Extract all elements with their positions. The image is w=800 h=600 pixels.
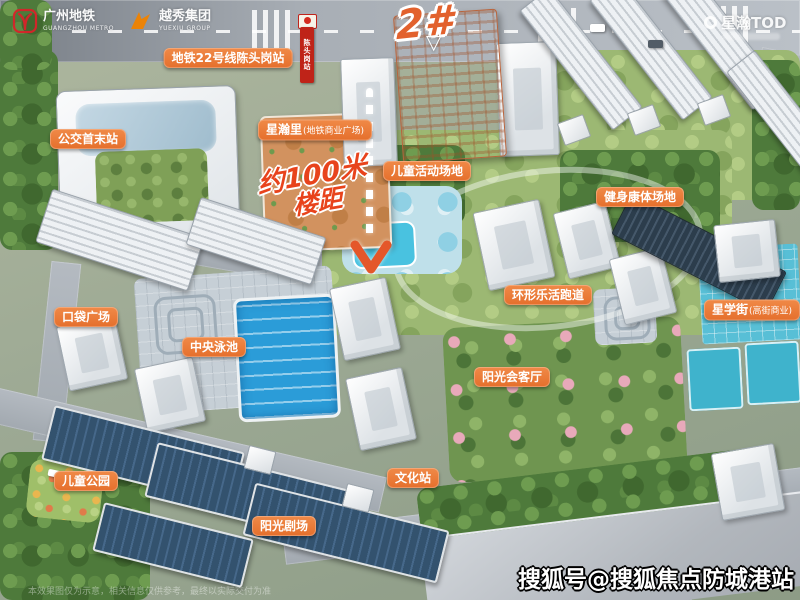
map-label-text: 文化站	[395, 471, 431, 485]
central-swimming-pool	[233, 293, 341, 422]
map-label-pocket-plaza: 口袋广场	[54, 307, 118, 327]
residential-tower	[713, 219, 781, 283]
map-label-sunshine-lounge: 阳光会客厅	[474, 367, 550, 387]
sohu-watermark: 搜狐号@搜狐焦点防城港站	[518, 560, 794, 594]
project-watermark: 星瀚TOD	[704, 12, 786, 33]
map-label-bus-terminal: 公交首末站	[50, 129, 126, 149]
guangzhou-metro-logo-icon	[12, 8, 38, 34]
developer-logos: 广州地铁 GUANGZHOU METRO 越秀集团 YUEXIU GROUP	[12, 8, 211, 34]
car	[648, 40, 663, 48]
aerial-site-plan: 陈头岗站 约100米 楼距 2# ▽ 地铁22号线陈头岗站公交首末站星瀚里(地铁…	[0, 0, 800, 600]
map-label-text: 儿童活动场地	[391, 164, 463, 178]
map-label-text: 健身康体场地	[604, 190, 676, 204]
map-label-sunshine-theater: 阳光剧场	[252, 516, 316, 536]
map-label-central-pool: 中央泳池	[182, 337, 246, 357]
map-label-subtext: (高街商业)	[749, 307, 792, 317]
map-label-text: 地铁22号线陈头岗站	[172, 51, 285, 65]
distance-arrow-icon	[348, 240, 394, 276]
map-label-children-activity-ground: 儿童活动场地	[383, 161, 471, 181]
map-label-text: 环形乐活跑道	[512, 288, 584, 302]
sports-court	[744, 341, 800, 406]
map-label-star-street: 星学街(高街商业)	[704, 300, 800, 321]
map-label-xinghanli-mall: 星瀚里(地铁商业广场)	[258, 120, 372, 141]
map-label-text: 中央泳池	[190, 340, 238, 354]
metro-sign-text: 陈头岗站	[300, 27, 314, 83]
map-label-loop-track: 环形乐活跑道	[504, 285, 592, 305]
yuexiu-sub: YUEXIU GROUP	[159, 25, 211, 32]
residential-tower	[711, 443, 786, 521]
map-label-text: 口袋广场	[62, 310, 110, 324]
map-label-metro-line22-station: 地铁22号线陈头岗站	[164, 48, 293, 68]
guangzhou-metro-sub: GUANGZHOU METRO	[43, 25, 114, 32]
map-label-text: 阳光剧场	[260, 519, 308, 533]
building-2-number: 2#	[396, 0, 453, 49]
map-label-text: 儿童公园	[62, 474, 110, 488]
yuexiu-name: 越秀集团	[159, 10, 211, 24]
metro-entrance-sign: 陈头岗站	[298, 14, 316, 84]
map-label-text: 阳光会客厅	[482, 370, 542, 384]
yuexiu-logo: 越秀集团 YUEXIU GROUP	[128, 8, 211, 34]
yuexiu-logo-icon	[128, 8, 154, 34]
map-label-children-park: 儿童公园	[54, 471, 118, 491]
residential-tower	[345, 367, 417, 451]
map-label-culture-station: 文化站	[387, 468, 439, 488]
map-label-subtext: (地铁商业广场)	[303, 127, 364, 137]
map-label-text: 星学街	[712, 303, 748, 317]
sports-court	[686, 347, 743, 412]
map-label-fitness-ground: 健身康体场地	[596, 187, 684, 207]
disclaimer-text: 本效果图仅为示意，相关信息仅供参考，最终以实际交付为准	[28, 584, 271, 597]
project-watermark-text: 星瀚TOD	[721, 12, 786, 33]
car	[590, 24, 605, 32]
project-watermark-subline	[722, 33, 780, 40]
map-label-text: 公交首末站	[58, 132, 118, 146]
distance-dashed-line	[366, 88, 373, 238]
guangzhou-metro-logo: 广州地铁 GUANGZHOU METRO	[12, 8, 114, 34]
project-logo-icon	[704, 16, 717, 29]
guangzhou-metro-name: 广州地铁	[43, 10, 114, 24]
map-label-text: 星瀚里	[266, 123, 302, 137]
triangle-marker-icon: ▽	[426, 30, 441, 54]
